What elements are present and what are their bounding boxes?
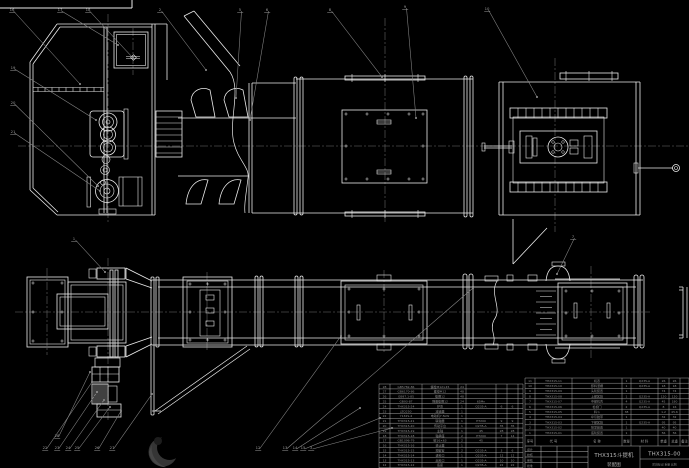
svg-text:THX315-04: THX315-04 [544, 415, 562, 419]
svg-text:Q235-A: Q235-A [639, 379, 651, 383]
svg-text:48: 48 [460, 390, 464, 394]
sig-label-approve: 批准 [527, 463, 533, 468]
bom-header-name: 名 称 [593, 439, 601, 444]
svg-text:25: 25 [75, 445, 80, 450]
svg-text:45: 45 [479, 439, 483, 443]
svg-text:28: 28 [383, 385, 387, 389]
svg-text:3: 3 [529, 420, 531, 424]
svg-text:26: 26 [95, 445, 100, 450]
svg-text:18: 18 [383, 434, 387, 438]
svg-text:13: 13 [283, 445, 288, 450]
svg-text:1: 1 [461, 463, 463, 467]
svg-text:24: 24 [460, 385, 464, 389]
svg-text:65Mn: 65Mn [477, 400, 485, 404]
svg-text:24: 24 [460, 400, 464, 404]
svg-text:Q235-A: Q235-A [475, 424, 487, 428]
svg-text:GB1096-79: GB1096-79 [398, 439, 415, 443]
svg-text:24: 24 [66, 445, 71, 450]
svg-text:23: 23 [55, 445, 60, 450]
svg-text:联轴器: 联轴器 [435, 418, 444, 423]
svg-text:16: 16 [673, 405, 677, 409]
sheet-name: 装配图 [607, 461, 621, 468]
svg-text:THX315-05: THX315-05 [544, 410, 562, 414]
svg-text:22: 22 [511, 463, 515, 467]
svg-text:下部区段: 下部区段 [591, 419, 603, 424]
svg-text:18: 18 [673, 384, 677, 388]
svg-text:38: 38 [625, 410, 629, 414]
svg-text:弹簧垫圈12: 弹簧垫圈12 [432, 399, 448, 404]
svg-text:5: 5 [529, 410, 531, 414]
svg-text:15: 15 [383, 449, 387, 453]
svg-text:底轮装置: 底轮装置 [591, 430, 603, 435]
svg-text:垫圈12: 垫圈12 [435, 394, 445, 399]
svg-text:120: 120 [672, 394, 678, 398]
svg-text:6: 6 [529, 405, 531, 409]
svg-text:35: 35 [500, 424, 504, 428]
svg-text:卸料溜槽: 卸料溜槽 [591, 383, 603, 388]
svg-text:GB93-87: GB93-87 [399, 400, 412, 404]
svg-text:逆止器: 逆止器 [435, 443, 444, 448]
svg-text:THX315-06: THX315-06 [544, 405, 562, 409]
svg-text:1: 1 [626, 420, 628, 424]
svg-text:螺栓M12×45: 螺栓M12×45 [431, 384, 450, 389]
svg-text:中部机壳: 中部机壳 [591, 399, 603, 404]
svg-text:2: 2 [461, 439, 463, 443]
drawing-number: THX315-00 [647, 452, 681, 458]
svg-text:120: 120 [661, 394, 667, 398]
svg-text:机罩: 机罩 [594, 378, 600, 383]
svg-text:10: 10 [485, 6, 490, 11]
svg-text:1: 1 [626, 389, 628, 393]
bom-header-remark: 备注 [681, 439, 688, 444]
svg-text:Q235-A: Q235-A [639, 420, 651, 424]
svg-text:12: 12 [511, 453, 515, 457]
svg-text:护罩: 护罩 [437, 403, 443, 408]
product-title: THX315斗提机 [593, 451, 634, 459]
svg-text:35: 35 [511, 424, 515, 428]
svg-text:1: 1 [626, 379, 628, 383]
svg-text:2: 2 [626, 405, 628, 409]
svg-text:减速器: 减速器 [435, 408, 444, 413]
svg-text:28: 28 [500, 429, 504, 433]
svg-text:45.6: 45.6 [671, 410, 678, 414]
svg-text:Q235-A: Q235-A [639, 400, 651, 404]
svg-text:45: 45 [479, 429, 483, 433]
svg-text:Q235-A: Q235-A [639, 394, 651, 398]
svg-text:74: 74 [673, 389, 677, 393]
bom-header-code: 代 号 [550, 439, 558, 444]
svg-text:THX315-21: THX315-21 [397, 419, 415, 423]
svg-text:牵引胶带: 牵引胶带 [591, 414, 603, 419]
svg-text:26: 26 [662, 379, 666, 383]
svg-text:2: 2 [461, 434, 463, 438]
svg-text:1: 1 [461, 453, 463, 457]
svg-text:1.2: 1.2 [661, 410, 666, 414]
svg-text:10: 10 [500, 458, 504, 462]
svg-text:32: 32 [673, 415, 677, 419]
svg-text:GB5782-86: GB5782-86 [398, 385, 415, 389]
svg-text:16: 16 [10, 7, 15, 12]
svg-text:8: 8 [529, 394, 531, 398]
svg-text:1: 1 [626, 426, 628, 430]
svg-text:95: 95 [662, 420, 666, 424]
svg-text:THX315-13: THX315-13 [397, 458, 415, 462]
svg-text:1: 1 [461, 404, 463, 408]
svg-text:3: 3 [501, 449, 503, 453]
svg-text:轴承座: 轴承座 [435, 433, 444, 438]
svg-text:张紧装置: 张紧装置 [591, 425, 603, 430]
svg-text:主轴: 主轴 [437, 428, 443, 433]
svg-text:11: 11 [528, 379, 532, 383]
svg-text:THX315-18: THX315-18 [397, 434, 415, 438]
svg-text:21: 21 [11, 129, 16, 134]
bom-header-unitwt: 单重 [660, 439, 667, 444]
svg-text:料斗: 料斗 [594, 409, 600, 414]
sig-label-design: 设计 [527, 447, 533, 452]
svg-text:Q235-A: Q235-A [475, 463, 487, 467]
svg-text:9: 9 [529, 389, 531, 393]
sig-label-audit: 审核 [527, 458, 533, 463]
bom-header-qty: 数量 [623, 439, 630, 444]
svg-text:1: 1 [626, 431, 628, 435]
svg-text:22: 22 [500, 463, 504, 467]
svg-text:GB6170-86: GB6170-86 [398, 390, 415, 394]
svg-text:Y132S-4: Y132S-4 [400, 414, 413, 418]
svg-text:Q235-A: Q235-A [475, 404, 487, 408]
sheet-background [0, 0, 689, 468]
svg-text:Q235-A: Q235-A [475, 453, 487, 457]
svg-text:95: 95 [673, 420, 677, 424]
svg-text:48: 48 [460, 395, 464, 399]
svg-text:10: 10 [528, 384, 532, 388]
svg-text:1: 1 [461, 429, 463, 433]
svg-text:Q235-A: Q235-A [639, 405, 651, 409]
svg-text:7: 7 [529, 400, 531, 404]
svg-text:HT200: HT200 [476, 419, 486, 423]
svg-text:25: 25 [383, 400, 387, 404]
svg-text:12: 12 [383, 463, 387, 467]
svg-text:20: 20 [383, 424, 387, 428]
svg-text:THX315-24: THX315-24 [397, 404, 415, 408]
svg-text:JZQ250: JZQ250 [399, 409, 411, 413]
svg-text:THX315-20: THX315-20 [397, 424, 415, 428]
svg-text:6: 6 [512, 404, 514, 408]
svg-text:1: 1 [461, 419, 463, 423]
svg-text:27: 27 [110, 445, 115, 450]
svg-text:10: 10 [511, 458, 515, 462]
svg-text:进料口: 进料口 [435, 452, 444, 457]
svg-text:THX315-11: THX315-11 [544, 379, 562, 383]
svg-text:THX315-08: THX315-08 [544, 394, 562, 398]
scale-strip: 阶段标记 重量 比例 [652, 463, 676, 467]
svg-text:14: 14 [293, 445, 298, 450]
svg-text:20: 20 [11, 100, 16, 105]
svg-text:1: 1 [626, 384, 628, 388]
svg-text:电动机7.5kW: 电动机7.5kW [431, 413, 450, 418]
svg-text:18: 18 [662, 384, 666, 388]
svg-text:19: 19 [11, 65, 16, 70]
svg-text:1: 1 [461, 424, 463, 428]
svg-text:26: 26 [673, 379, 677, 383]
svg-text:HT200: HT200 [476, 434, 486, 438]
svg-text:45: 45 [662, 400, 666, 404]
svg-text:56: 56 [662, 431, 666, 435]
svg-text:2: 2 [529, 426, 531, 430]
svg-text:传动平台: 传动平台 [434, 423, 446, 428]
svg-text:27: 27 [383, 390, 387, 394]
svg-text:GB97.1-85: GB97.1-85 [398, 395, 414, 399]
svg-text:检视门: 检视门 [592, 404, 601, 409]
svg-text:THX315-09: THX315-09 [544, 389, 562, 393]
svg-text:17: 17 [383, 439, 387, 443]
svg-text:9: 9 [501, 419, 503, 423]
svg-text:14: 14 [383, 453, 387, 457]
svg-text:23: 23 [383, 409, 387, 413]
svg-text:28: 28 [511, 429, 515, 433]
svg-text:THX315-03: THX315-03 [544, 420, 562, 424]
svg-text:16: 16 [383, 444, 387, 448]
svg-text:15: 15 [301, 445, 306, 450]
svg-text:13: 13 [383, 458, 387, 462]
svg-text:4: 4 [529, 415, 531, 419]
svg-text:Q235-A: Q235-A [639, 384, 651, 388]
svg-text:THX315-16: THX315-16 [397, 444, 415, 448]
svg-text:26: 26 [383, 395, 387, 399]
svg-text:键16×63: 键16×63 [433, 438, 446, 443]
svg-text:THX315-19: THX315-19 [397, 429, 415, 433]
svg-text:螺母M12: 螺母M12 [434, 389, 446, 394]
svg-text:12: 12 [500, 453, 504, 457]
svg-text:18: 18 [86, 7, 91, 12]
svg-text:180: 180 [672, 400, 678, 404]
sig-label-check: 校核 [527, 452, 533, 457]
svg-text:1: 1 [461, 409, 463, 413]
svg-text:40: 40 [662, 426, 666, 430]
svg-text:12: 12 [256, 445, 261, 450]
svg-text:1: 1 [529, 431, 531, 435]
svg-text:THX315-02: THX315-02 [544, 426, 562, 430]
svg-text:Q235-A: Q235-A [475, 458, 487, 462]
svg-text:THX315-12: THX315-12 [397, 463, 415, 467]
svg-text:THX315-07: THX315-07 [544, 400, 562, 404]
svg-text:4: 4 [626, 400, 628, 404]
bom-header-totalwt: 总重 [671, 439, 678, 444]
svg-text:头轮装置: 头轮装置 [591, 388, 603, 393]
svg-text:1: 1 [461, 444, 463, 448]
svg-text:8: 8 [663, 405, 665, 409]
bom-header-material: 材 料 [641, 439, 649, 444]
svg-text:出料口: 出料口 [435, 457, 444, 462]
svg-text:THX315-14: THX315-14 [397, 453, 415, 457]
svg-text:14: 14 [511, 434, 515, 438]
svg-text:24: 24 [383, 404, 387, 408]
svg-text:74: 74 [662, 389, 666, 393]
cad-canvas: 28GB5782-86螺栓M12×452427GB6170-86螺母M12482… [0, 0, 689, 468]
svg-text:2: 2 [461, 449, 463, 453]
svg-text:THX315-01: THX315-01 [544, 431, 562, 435]
svg-text:Q235-A: Q235-A [475, 449, 487, 453]
svg-text:THX315-10: THX315-10 [544, 384, 562, 388]
svg-text:上部区段: 上部区段 [591, 393, 603, 398]
svg-text:1: 1 [461, 414, 463, 418]
svg-text:9: 9 [512, 419, 514, 423]
bom-header-seq: 序号 [527, 439, 534, 444]
svg-text:1: 1 [461, 458, 463, 462]
svg-text:40: 40 [673, 426, 677, 430]
svg-text:1: 1 [626, 394, 628, 398]
svg-text:THX315-15: THX315-15 [397, 449, 415, 453]
svg-text:7: 7 [501, 434, 503, 438]
svg-text:56: 56 [673, 431, 677, 435]
svg-text:1: 1 [626, 415, 628, 419]
svg-text:21: 21 [383, 419, 387, 423]
svg-text:6: 6 [512, 449, 514, 453]
svg-text:底座: 底座 [437, 462, 443, 467]
svg-text:观察窗: 观察窗 [435, 448, 444, 453]
svg-text:22: 22 [383, 414, 387, 418]
svg-text:17: 17 [58, 7, 63, 12]
svg-text:22: 22 [43, 445, 48, 450]
svg-text:32: 32 [662, 415, 666, 419]
svg-text:6: 6 [501, 404, 503, 408]
